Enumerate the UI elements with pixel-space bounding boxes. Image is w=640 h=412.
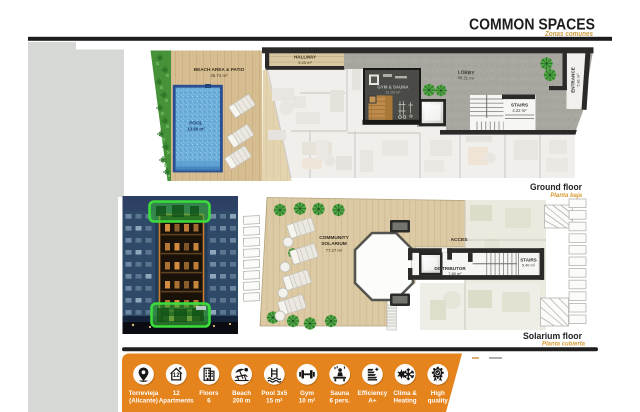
svg-text:ACCES: ACCES <box>450 237 468 243</box>
svg-text:Sauna: Sauna <box>330 390 349 397</box>
svg-text:SOLARIUM: SOLARIUM <box>321 241 347 247</box>
svg-text:Planta baja: Planta baja <box>550 193 582 199</box>
svg-text:56.31 m²: 56.31 m² <box>457 75 474 81</box>
svg-text:Torrevieja: Torrevieja <box>129 390 159 397</box>
svg-text:Pool 3x5: Pool 3x5 <box>261 390 287 397</box>
svg-text:45.74 m²: 45.74 m² <box>210 73 228 78</box>
svg-text:200 m: 200 m <box>233 397 251 404</box>
svg-text:7.80 m²: 7.80 m² <box>448 271 462 276</box>
svg-text:Ground floor: Ground floor <box>530 182 582 193</box>
svg-text:GYM & SAUNA: GYM & SAUNA <box>377 84 409 89</box>
svg-text:(Alicante): (Alicante) <box>129 397 158 404</box>
svg-text:Gym: Gym <box>300 390 314 397</box>
svg-text:Heating: Heating <box>394 397 417 404</box>
svg-text:12: 12 <box>173 372 180 379</box>
svg-text:6: 6 <box>207 397 211 404</box>
svg-text:Efficiency: Efficiency <box>358 390 388 397</box>
svg-text:5.45 m²: 5.45 m² <box>298 60 312 65</box>
svg-text:Planta cubierta: Planta cubierta <box>542 342 586 348</box>
svg-text:quality: quality <box>428 397 449 404</box>
svg-text:12: 12 <box>173 390 181 397</box>
svg-text:11.00 m²: 11.00 m² <box>386 91 401 95</box>
svg-text:Apartments: Apartments <box>159 397 194 404</box>
svg-text:COMMUNITY: COMMUNITY <box>319 235 349 241</box>
svg-text:Beach: Beach <box>232 390 251 397</box>
svg-text:10 m²: 10 m² <box>299 397 315 404</box>
svg-text:13.90 m²: 13.90 m² <box>187 127 205 132</box>
svg-text:77.27 m²: 77.27 m² <box>326 248 343 253</box>
svg-text:5.81 m²: 5.81 m² <box>576 73 581 87</box>
svg-text:Clima &: Clima & <box>393 390 417 397</box>
svg-text:15 m²: 15 m² <box>266 397 282 404</box>
svg-text:A+: A+ <box>368 397 377 404</box>
svg-text:HALLWAY: HALLWAY <box>294 55 316 60</box>
svg-text:Solarium floor: Solarium floor <box>523 331 582 342</box>
svg-text:6 pers.: 6 pers. <box>330 397 351 404</box>
svg-text:4.22 m²: 4.22 m² <box>512 108 527 113</box>
svg-text:High: High <box>431 390 445 397</box>
svg-text:Floors: Floors <box>199 390 219 397</box>
svg-text:BEACH AREA & PATIO: BEACH AREA & PATIO <box>194 67 245 72</box>
svg-text:5.40 m²: 5.40 m² <box>522 263 536 268</box>
